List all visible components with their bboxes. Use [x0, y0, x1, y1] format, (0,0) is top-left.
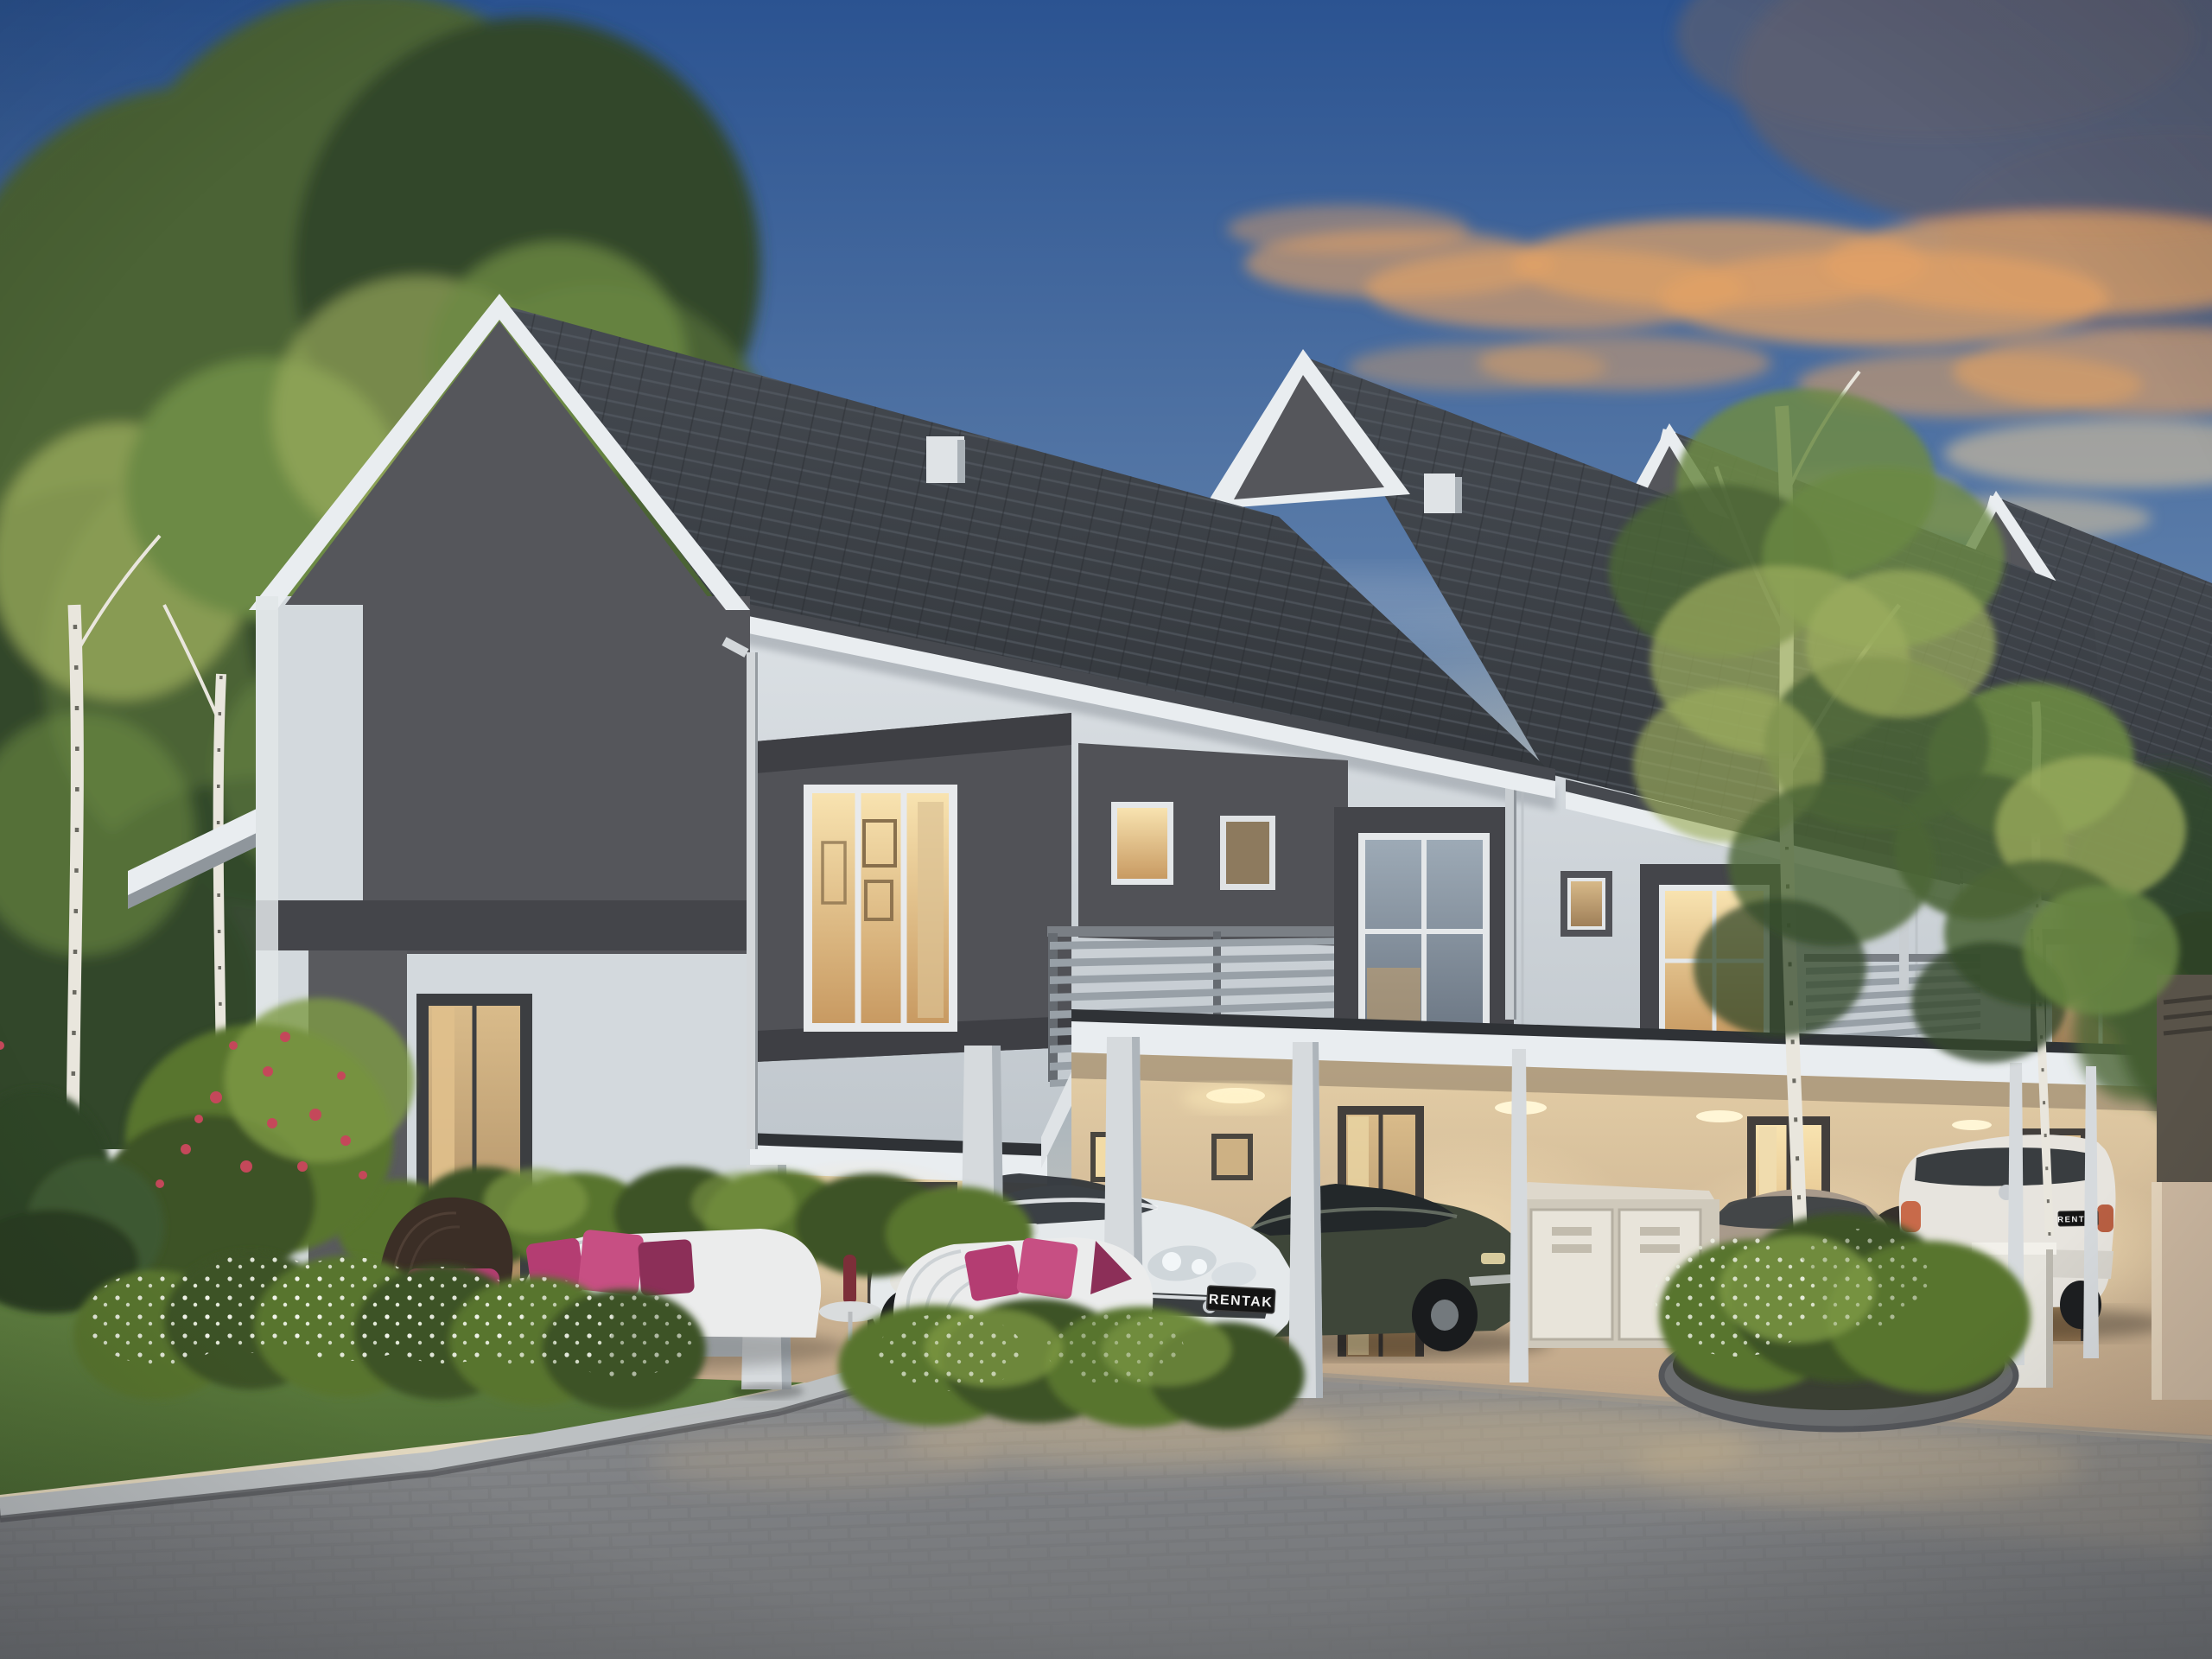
architectural-rendering: 3D architectural rendering of modern two… — [0, 0, 2212, 1659]
vignette-overlay — [0, 0, 2212, 1659]
